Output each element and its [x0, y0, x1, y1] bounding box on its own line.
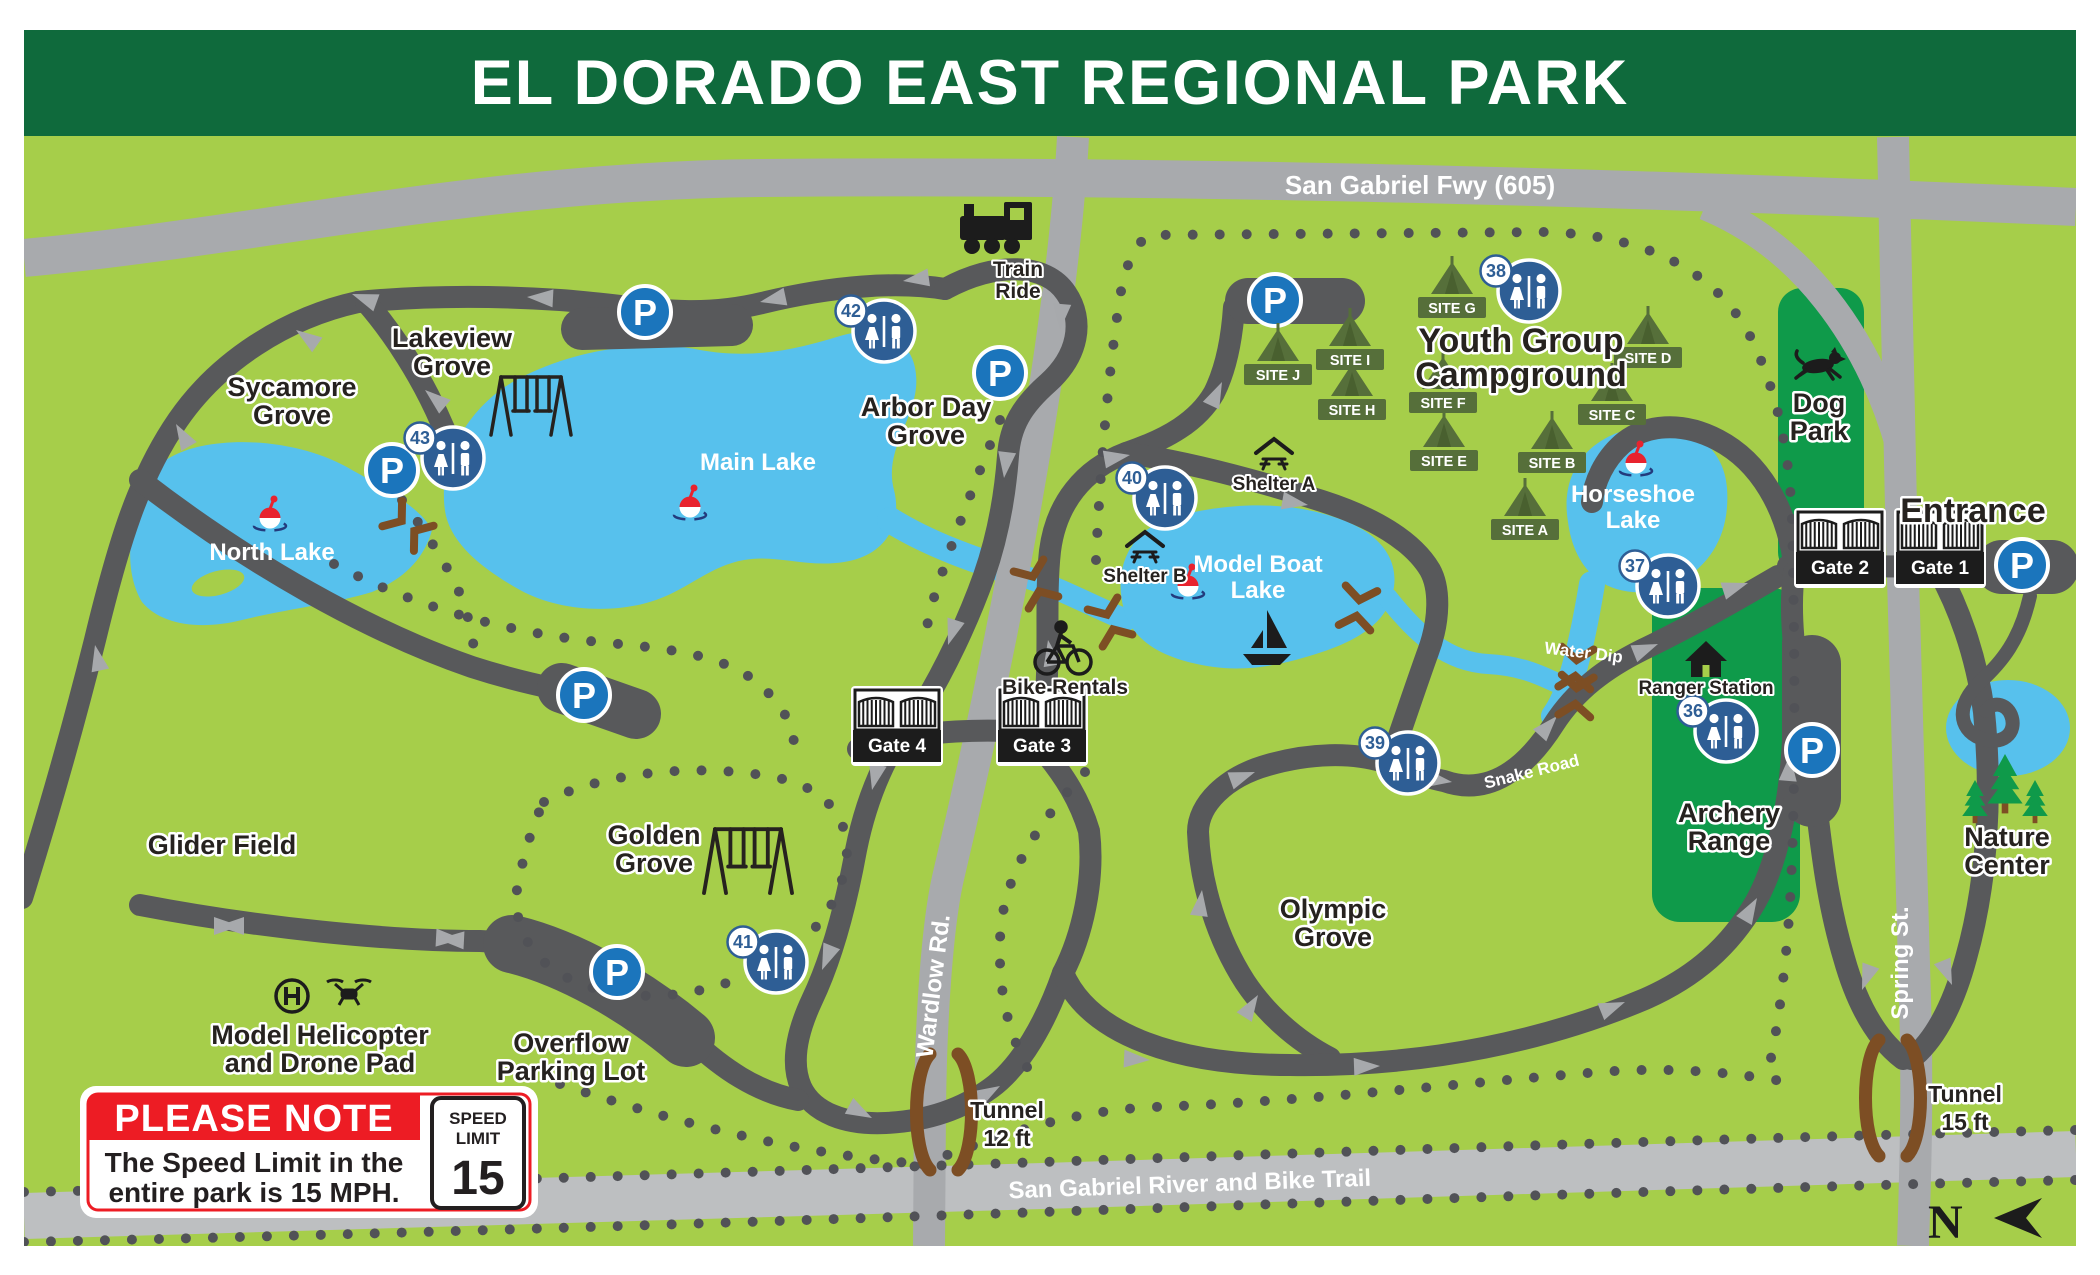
parking-icon: P	[1249, 274, 1301, 326]
label-north-lake: North Lake	[209, 539, 334, 566]
parking-letter: P	[2010, 545, 2034, 586]
gate-label: Gate 3	[1013, 736, 1071, 757]
sign-limit: LIMIT	[456, 1129, 501, 1148]
gate-label: Gate 2	[1811, 558, 1869, 579]
restroom-number: 38	[1486, 261, 1506, 281]
restroom-number: 43	[410, 428, 430, 448]
parking-icon: P	[366, 444, 418, 496]
label-shelter-a: Shelter A	[1233, 474, 1316, 495]
campsite-label: SITE B	[1529, 456, 1576, 472]
campsite-label: SITE E	[1421, 454, 1467, 470]
parking-letter: P	[633, 292, 657, 333]
sign-speed: SPEED	[449, 1109, 507, 1128]
campsite-label: SITE F	[1420, 396, 1465, 412]
parking-icon: P	[558, 669, 610, 721]
parking-letter: P	[1800, 730, 1824, 771]
restroom-number: 39	[1365, 733, 1385, 753]
label-glider-field: Glider Field	[148, 830, 297, 860]
label-overflow-parking-lot: OverflowParking Lot	[497, 1028, 646, 1086]
campsite-label: SITE G	[1428, 301, 1476, 317]
please-note-box: PLEASE NOTE The Speed Limit in the entir…	[80, 1086, 538, 1218]
label-entrance: Entrance	[1900, 492, 2046, 530]
restroom-number: 41	[733, 932, 753, 952]
campsite-label: SITE I	[1330, 353, 1370, 369]
label-dog-park: DogPark	[1790, 388, 1850, 446]
note-body-2: entire park is 15 MPH.	[108, 1177, 399, 1208]
label-golden-grove: GoldenGrove	[608, 820, 701, 878]
parking-letter: P	[605, 952, 629, 993]
campsite-label: SITE C	[1589, 408, 1636, 424]
parking-icon: P	[619, 286, 671, 338]
el-dorado-park-map: PPPPPPPP 3637383940414243 SITE ASITE BSI…	[0, 0, 2100, 1275]
label-youth-group-campground: Youth GroupCampground	[1415, 322, 1627, 394]
parking-letter: P	[572, 675, 596, 716]
campsite-label: SITE A	[1502, 523, 1549, 539]
gate-icon: Gate 2	[1794, 508, 1886, 588]
parking-icon: P	[1996, 539, 2048, 591]
gate-icon: Gate 4	[851, 686, 943, 766]
label-shelter-b: Shelter B	[1103, 566, 1186, 587]
restroom-number: 42	[841, 301, 861, 321]
parking-icon: P	[591, 946, 643, 998]
parking-letter: P	[988, 353, 1012, 394]
sign-15: 15	[451, 1152, 504, 1205]
parking-letter: P	[380, 450, 404, 491]
campsite-label: SITE D	[1625, 351, 1672, 367]
note-body-1: The Speed Limit in the	[105, 1147, 404, 1178]
parking-icon: P	[1786, 724, 1838, 776]
label-olympic-grove: OlympicGrove	[1280, 894, 1387, 952]
campsite-label: SITE J	[1256, 368, 1300, 384]
speed-limit-sign: SPEED LIMIT 15	[432, 1098, 524, 1208]
label-san-gabriel-fwy: San Gabriel Fwy (605)	[1285, 170, 1555, 200]
page-title: EL DORADO EAST REGIONAL PARK	[471, 48, 1630, 118]
parking-letter: P	[1263, 280, 1287, 321]
label-bike-rentals: Bike Rentals	[1002, 676, 1128, 699]
label-spring-st: Spring St.	[1887, 906, 1914, 1019]
gate-label: Gate 1	[1911, 558, 1970, 579]
label-train-ride: TrainRide	[993, 258, 1043, 303]
restroom-number: 36	[1683, 701, 1703, 721]
compass-n-letter: N	[1928, 1196, 1963, 1249]
park-map-page: PPPPPPPP 3637383940414243 SITE ASITE BSI…	[0, 0, 2100, 1275]
label-ranger-station: Ranger Station	[1638, 678, 1773, 699]
label-main-lake: Main Lake	[700, 449, 816, 476]
label-model-helicopter: Model Helicopterand Drone Pad	[211, 1020, 429, 1078]
label-nature-center: NatureCenter	[1964, 822, 2050, 880]
restroom-number: 37	[1625, 556, 1645, 576]
gate-label: Gate 4	[868, 736, 927, 757]
label-archery-range: ArcheryRange	[1678, 798, 1780, 856]
note-heading: PLEASE NOTE	[114, 1098, 393, 1140]
restroom-number: 40	[1122, 468, 1142, 488]
campsite-label: SITE H	[1329, 403, 1376, 419]
